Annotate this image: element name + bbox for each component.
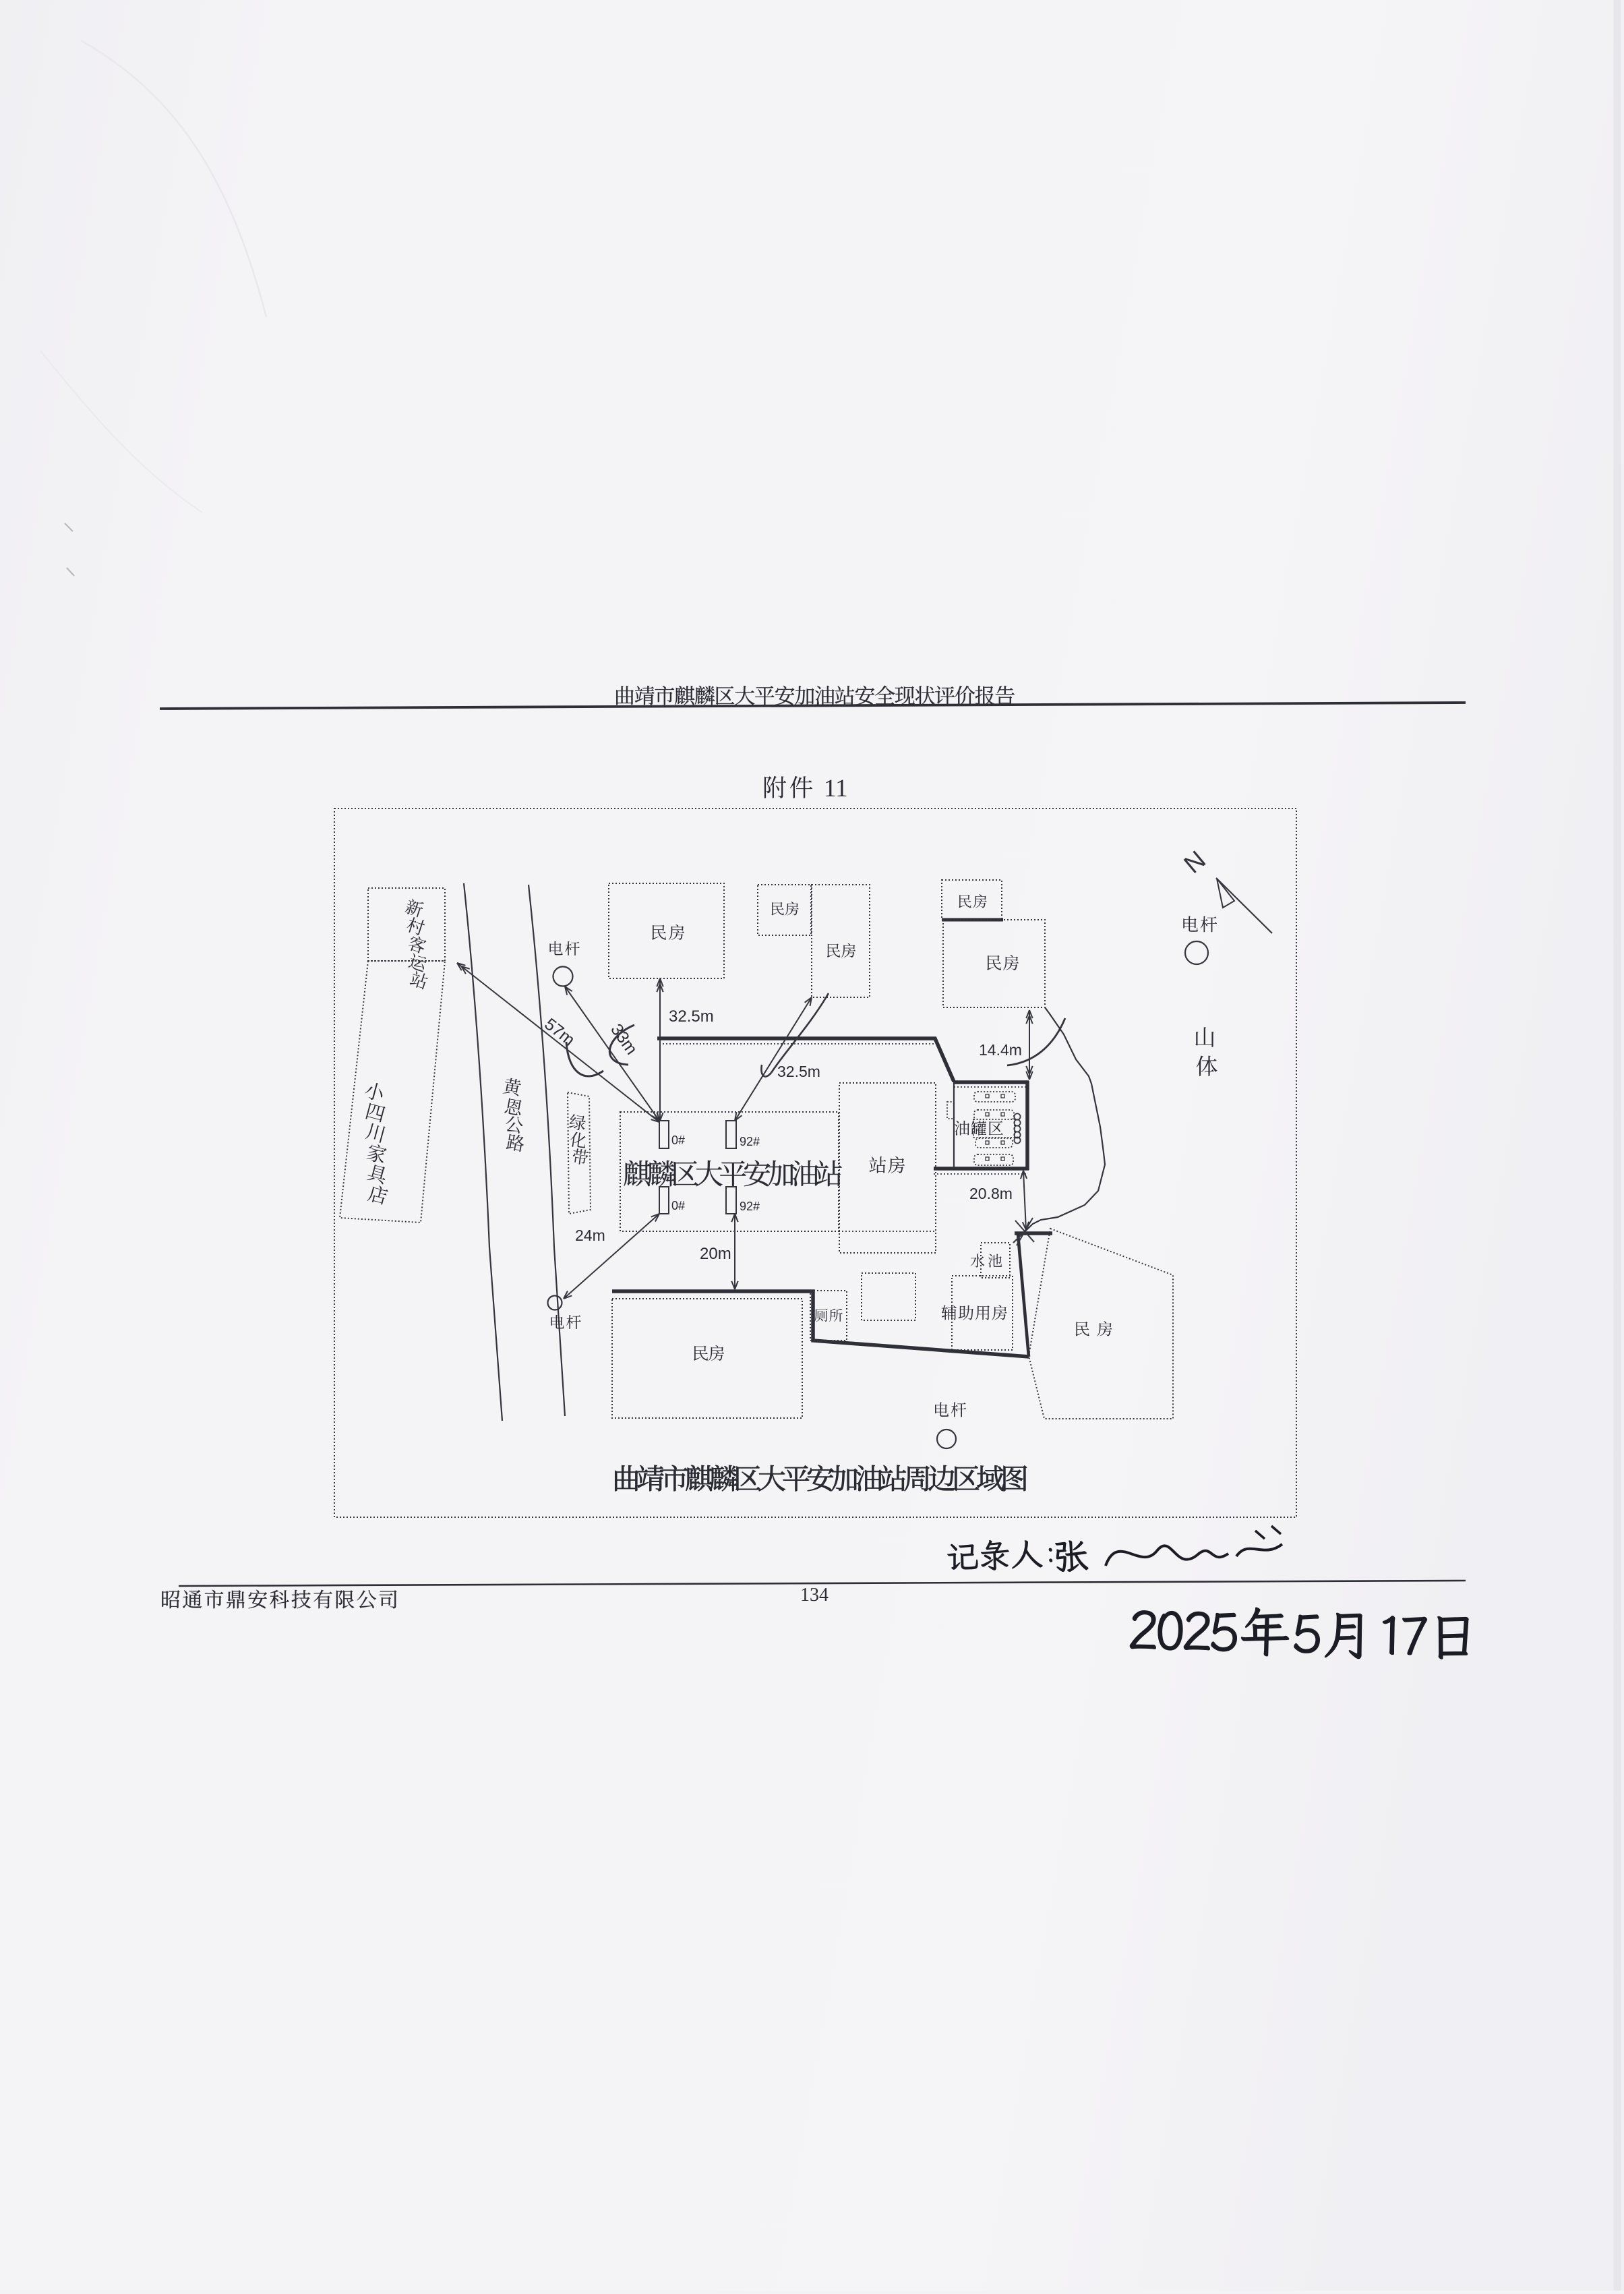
svg-text:24m: 24m [575, 1227, 605, 1244]
svg-text:32.5m: 32.5m [777, 1063, 820, 1080]
svg-text:134: 134 [800, 1585, 829, 1606]
svg-text:11: 11 [824, 775, 848, 802]
svg-text:92#: 92# [740, 1200, 760, 1213]
svg-text:20.8m: 20.8m [969, 1185, 1013, 1202]
svg-text:20m: 20m [700, 1245, 731, 1263]
svg-text:14.4m: 14.4m [979, 1041, 1022, 1059]
svg-text:92#: 92# [740, 1135, 760, 1148]
svg-text:0#: 0# [671, 1134, 685, 1147]
svg-text:32.5m: 32.5m [669, 1007, 714, 1026]
svg-text:0#: 0# [671, 1199, 685, 1212]
